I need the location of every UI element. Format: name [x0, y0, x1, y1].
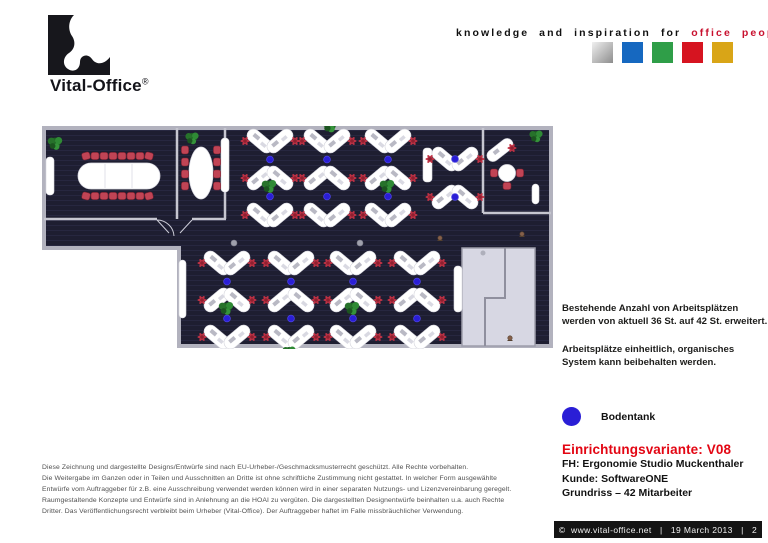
footer-separator: [652, 525, 660, 535]
chair: [118, 192, 126, 199]
bodentank-dot: [350, 278, 357, 285]
bin: [357, 240, 363, 246]
sideboard: [454, 266, 462, 312]
project-line-kunde: Kunde: SoftwareONE: [562, 472, 767, 487]
chair: [91, 192, 99, 199]
disclaimer-line: Entwürfe vom Auftraggeber für z.B. eine …: [42, 485, 542, 496]
chair: [91, 152, 99, 159]
bodentank-dot: [452, 194, 459, 201]
bodentank-dot: [385, 156, 392, 163]
chair: [127, 192, 135, 199]
tagline-red: office people: [691, 27, 768, 39]
chair: [213, 146, 220, 154]
project-info: Einrichtungsvariante: V08 FH: Ergonomie …: [562, 442, 767, 501]
bodentank-dot: [385, 193, 392, 200]
chair: [109, 152, 117, 159]
footer-spacer: [733, 525, 741, 535]
brand-square-gold: [712, 42, 733, 63]
chair: [81, 192, 91, 201]
brand-square-green: [652, 42, 673, 63]
bodentank-dot: [267, 193, 274, 200]
footer-spacer: [663, 525, 671, 535]
legend-bodentank: Bodentank: [562, 407, 655, 426]
chair: [213, 170, 220, 178]
project-line-fh: FH: Ergonomie Studio Muckenthaler: [562, 457, 767, 472]
chair: [144, 152, 154, 161]
bodentank-dot: [267, 156, 274, 163]
chair: [503, 182, 511, 189]
bodentank-dot-icon: [562, 407, 581, 426]
chair: [144, 192, 154, 201]
bodentank-dot: [350, 315, 357, 322]
project-line-grundriss: Grundriss – 42 Mitarbeiter: [562, 486, 767, 501]
disclaimer-line: Dritter. Das Veröffentlichungsrecht verb…: [42, 507, 542, 518]
chair: [181, 170, 188, 178]
chair: [213, 158, 220, 166]
chair: [213, 182, 220, 190]
chair: [136, 152, 144, 159]
project-title: Einrichtungsvariante: V08: [562, 442, 767, 457]
sideboard: [423, 148, 432, 182]
bodentank-dot: [452, 156, 459, 163]
footer-copyright: © www.vital-office.net: [559, 525, 652, 535]
bodentank-dot: [288, 315, 295, 322]
disclaimer-line: Diese Zeichnung und dargestellte Designs…: [42, 463, 542, 474]
chair: [181, 146, 188, 154]
footer-date: 19 March 2013: [671, 525, 733, 535]
legend-label: Bodentank: [601, 411, 655, 423]
bodentank-dot: [414, 315, 421, 322]
bodentank-dot: [324, 156, 331, 163]
page: Vital-Office® knowledge and inspiration …: [0, 0, 768, 543]
logo: Vital-Office®: [48, 15, 110, 75]
sideboard: [221, 138, 229, 192]
note-line: System kann beibehalten werden.: [562, 356, 734, 369]
chair: [136, 192, 144, 199]
tagline-black: knowledge and inspiration for: [456, 27, 681, 39]
footer-bar: © www.vital-office.net | 19 March 2013 |…: [554, 521, 762, 538]
note-line: Arbeitsplätze einheitlich, organisches: [562, 343, 734, 356]
sideboard: [46, 157, 54, 195]
brand-color-squares: [592, 42, 733, 63]
logo-wordmark: Vital-Office®: [50, 76, 149, 96]
chair: [181, 182, 188, 190]
floor-plan: [42, 126, 553, 349]
chair: [490, 169, 497, 177]
tagline: knowledge and inspiration for office peo…: [456, 27, 756, 39]
bodentank-dot: [414, 278, 421, 285]
floor-plan-drawing: [42, 126, 553, 349]
note-workstations: Bestehende Anzahl von Arbeitsplätzen wer…: [562, 302, 767, 328]
note-line: werden von aktuell 36 St. auf 42 St. erw…: [562, 315, 767, 328]
chair: [100, 152, 108, 159]
chair: [516, 169, 523, 177]
bodentank-dot: [224, 278, 231, 285]
bodentank-dot: [288, 278, 295, 285]
footer-page-number: 2: [752, 525, 757, 535]
disclaimer-line: Die Weitergabe im Ganzen oder in Teilen …: [42, 474, 542, 485]
logo-mark-icon: [48, 15, 110, 75]
note-system: Arbeitsplätze einheitlich, organisches S…: [562, 343, 734, 369]
chair: [109, 192, 117, 199]
note-line: Bestehende Anzahl von Arbeitsplätzen: [562, 302, 767, 315]
disclaimer: Diese Zeichnung und dargestellte Designs…: [42, 463, 542, 518]
footer-spacer: [744, 525, 752, 535]
bodentank-dot: [324, 193, 331, 200]
brand-square-red: [682, 42, 703, 63]
chair: [118, 152, 126, 159]
sideboard: [179, 260, 186, 318]
brand-square-blue: [622, 42, 643, 63]
disclaimer-line: Raumgestaltende Konzepte und Entwürfe si…: [42, 496, 542, 507]
chair: [81, 152, 91, 161]
chair: [100, 192, 108, 199]
brand-square-silver: [592, 42, 613, 63]
sideboard: [532, 184, 539, 204]
chair: [127, 152, 135, 159]
bodentank-dot: [224, 315, 231, 322]
bin: [231, 240, 237, 246]
stairwell: [462, 248, 535, 346]
chair: [181, 158, 188, 166]
